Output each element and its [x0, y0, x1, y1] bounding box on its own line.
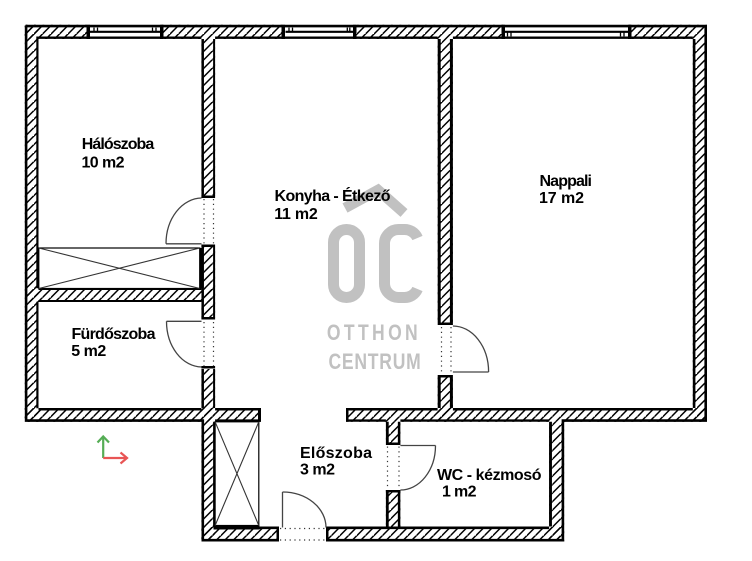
svg-text:Nappali: Nappali: [540, 173, 593, 190]
svg-text:5 m2: 5 m2: [71, 343, 106, 360]
svg-text:Előszoba: Előszoba: [300, 445, 372, 462]
svg-text:Konyha - Étkező: Konyha - Étkező: [275, 186, 391, 205]
svg-text:1 m2: 1 m2: [442, 484, 477, 501]
svg-text:17 m2: 17 m2: [539, 190, 584, 207]
svg-text:WC - kézmosó: WC - kézmosó: [437, 467, 542, 484]
svg-text:11 m2: 11 m2: [274, 206, 318, 223]
svg-text:OTTHON: OTTHON: [327, 321, 421, 346]
svg-text:CENTRUM: CENTRUM: [328, 350, 421, 375]
svg-text:Hálószoba: Hálószoba: [82, 136, 155, 153]
svg-text:10 m2: 10 m2: [82, 154, 125, 171]
svg-text:3 m2: 3 m2: [300, 462, 335, 479]
svg-text:Fürdőszoba: Fürdőszoba: [72, 326, 156, 343]
